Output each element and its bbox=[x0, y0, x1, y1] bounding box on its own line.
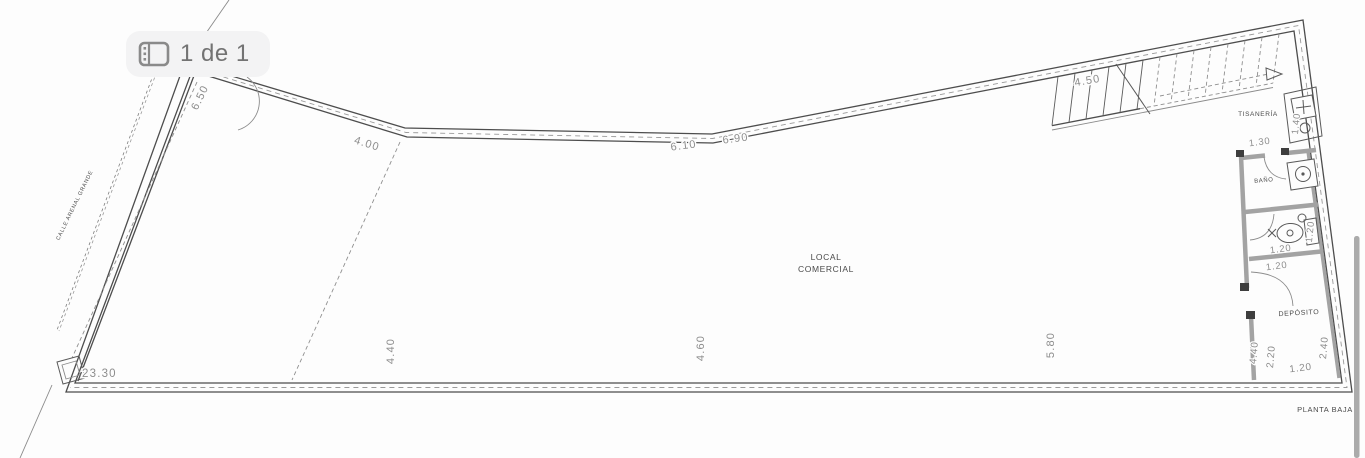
dimension-tisaneria-depth: 1.40 bbox=[1290, 112, 1303, 135]
projection-line-left bbox=[72, 82, 197, 358]
room-label-deposito: DEPÓSITO bbox=[1278, 307, 1319, 318]
dimension-bottom-1: 4.40 bbox=[385, 338, 397, 364]
dimension-stairs: 4.50 bbox=[1074, 73, 1102, 89]
photo-counter-badge: 1 de 1 bbox=[126, 31, 270, 77]
lot-line-bottom bbox=[20, 385, 52, 458]
wall-centerline bbox=[70, 26, 1347, 388]
room-label-local-line2: COMERCIAL bbox=[798, 264, 854, 274]
door-jamb-block bbox=[1240, 283, 1249, 291]
dimension-partition: 1.20 bbox=[1265, 260, 1288, 274]
dimension-bottom-3: 5.80 bbox=[1045, 332, 1057, 358]
door-jamb-block bbox=[1281, 148, 1289, 155]
stair-direction-line bbox=[1160, 75, 1266, 97]
bath-door-arc bbox=[1264, 157, 1286, 179]
dimension-deposito-w3: 2.40 bbox=[1318, 336, 1331, 360]
dimension-bath-side: 1.20 bbox=[1304, 220, 1317, 243]
deposito-door-arc bbox=[1251, 272, 1293, 306]
dimension-bottom-2: 4.60 bbox=[695, 335, 707, 361]
washbasin-icon bbox=[1287, 159, 1318, 190]
dimension-deposito-w2: 1.20 bbox=[1289, 362, 1313, 376]
dimension-top-seg2: 6.10 bbox=[670, 138, 697, 153]
dimension-top-seg1: 4.00 bbox=[353, 135, 382, 154]
door-jamb-block bbox=[1246, 311, 1255, 319]
dimension-top-seg3: 6.90 bbox=[722, 131, 749, 146]
door-jamb-block bbox=[1236, 150, 1244, 157]
gallery-icon bbox=[138, 41, 170, 67]
dimension-deposito-w1: 2.20 bbox=[1265, 345, 1278, 369]
dimension-bottom-total: 23.30 bbox=[82, 368, 117, 380]
stair-edge-dashed bbox=[1140, 83, 1273, 109]
stair-treads-solid bbox=[1052, 60, 1143, 126]
room-label-local-line1: LOCAL bbox=[811, 252, 842, 262]
dimension-left-wall: 6.50 bbox=[189, 83, 211, 112]
page-edge-bar bbox=[1354, 236, 1360, 458]
stair-edge-solid bbox=[1052, 109, 1140, 126]
stair-edge-outer bbox=[1052, 88, 1273, 131]
street-label: CALLE ARENAL GRANDE bbox=[56, 170, 95, 242]
dimension-deposito-depth: 4.40 bbox=[1248, 341, 1261, 365]
photo-counter-label: 1 de 1 bbox=[180, 40, 250, 68]
floor-label: PLANTA BAJA bbox=[1297, 405, 1353, 414]
room-label-bano: BAÑO bbox=[1254, 176, 1274, 185]
dimension-tisaneria-width: 1.30 bbox=[1248, 136, 1271, 150]
room-label-tisaneria: TISANERÍA bbox=[1238, 109, 1278, 118]
toilet-door-arc bbox=[1250, 214, 1274, 240]
projection-line-mid bbox=[292, 142, 400, 380]
entrance-door-arc bbox=[238, 77, 259, 130]
floorplan-viewer: 6.50 4.00 6.10 6.90 4.50 1.30 1.40 1.20 … bbox=[0, 0, 1365, 458]
building-outline-inner bbox=[75, 31, 1342, 383]
